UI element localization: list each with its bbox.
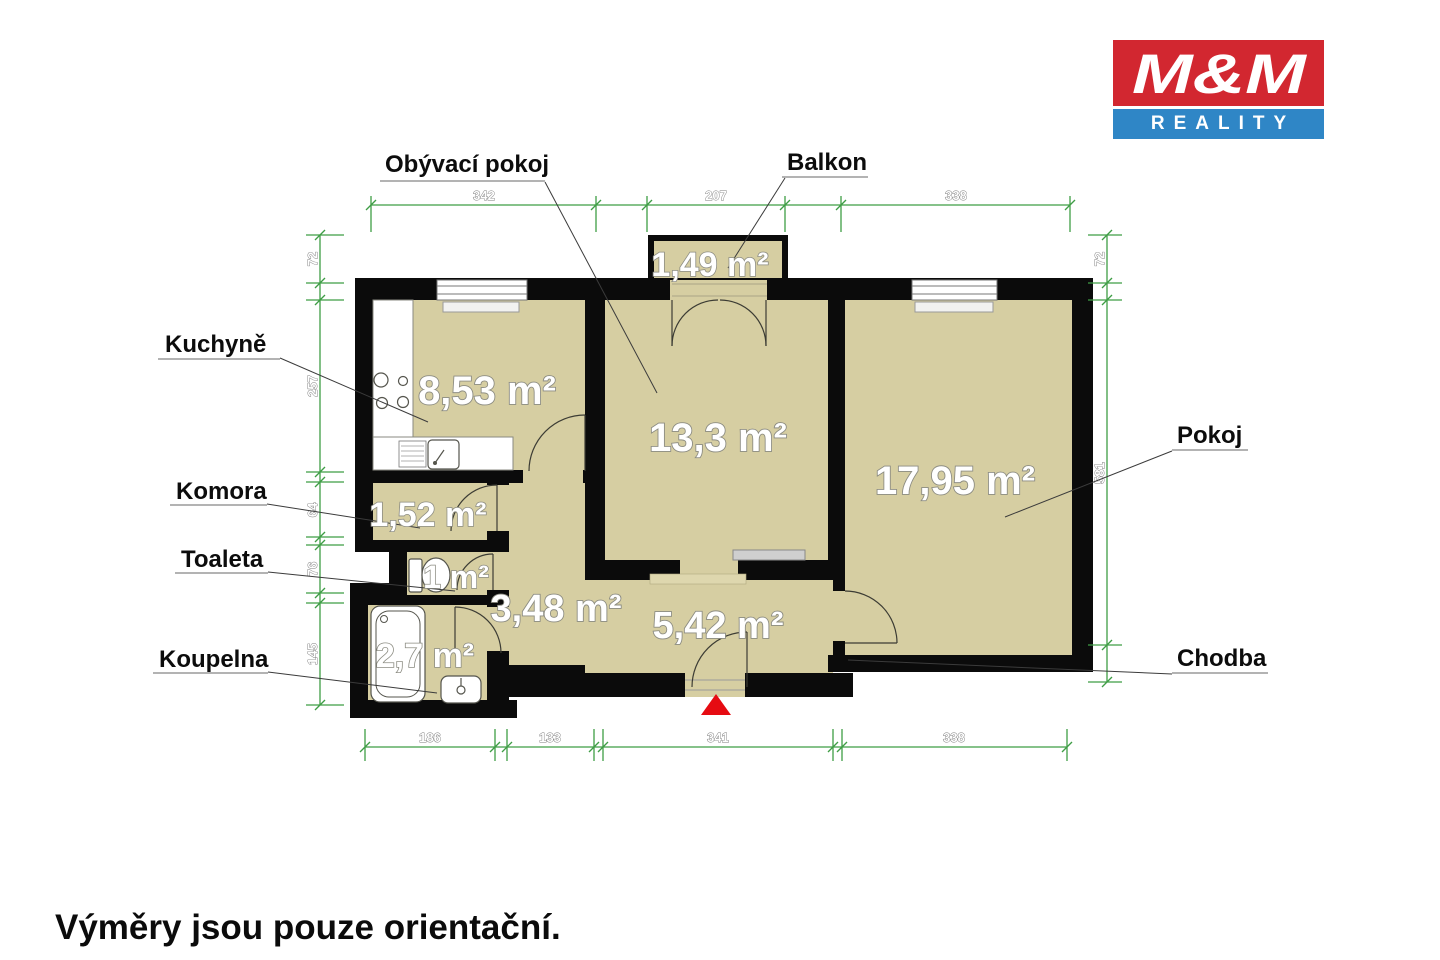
dim-left-1: 72 <box>305 252 320 266</box>
label-kitchen: Kuchyně <box>165 331 266 358</box>
area-inner-hall: 3,48 m² <box>491 588 622 630</box>
floor-plan-page: 342 207 338 186 133 341 338 72 257 64 76… <box>0 0 1440 960</box>
area-balcony: 1,49 m² <box>651 246 768 284</box>
area-bathroom: 2,7 m² <box>376 637 474 675</box>
dim-top-2: 207 <box>705 188 727 203</box>
floor-plan-drawing: 342 207 338 186 133 341 338 72 257 64 76… <box>0 0 1440 960</box>
kitchen-window <box>437 280 527 300</box>
area-bedroom: 17,95 m² <box>875 459 1035 503</box>
label-bedroom: Pokoj <box>1177 422 1242 449</box>
bedroom-window <box>912 280 997 300</box>
logo-reality-text: REALITY <box>1142 113 1295 135</box>
area-pantry: 1,52 m² <box>369 496 486 534</box>
label-living-room: Obývací pokoj <box>385 151 549 178</box>
dim-bottom-4: 338 <box>943 730 965 745</box>
dim-bottom-1: 186 <box>419 730 441 745</box>
logo-mm-text: M&M <box>1132 41 1306 106</box>
dim-ticks-right <box>1088 230 1122 687</box>
balcony-parapet-top <box>648 235 788 241</box>
area-hallway: 5,42 m² <box>653 605 784 647</box>
label-toilet: Toaleta <box>181 546 264 573</box>
living-room-radiator <box>733 550 805 560</box>
dim-left-5: 145 <box>305 643 320 665</box>
balcony-parapet-right <box>782 235 788 285</box>
bedroom-radiator <box>915 302 993 312</box>
dim-right-2: 581 <box>1092 462 1107 484</box>
dim-left-2: 257 <box>305 375 320 397</box>
logo-red-block: M&M <box>1113 40 1324 106</box>
label-pantry: Komora <box>176 478 267 505</box>
dim-bottom-2: 133 <box>539 730 561 745</box>
area-toilet: 1 m² <box>423 559 489 595</box>
dim-ticks-left <box>306 230 344 710</box>
dim-bottom-3: 341 <box>707 730 729 745</box>
label-bathroom: Koupelna <box>159 646 269 673</box>
area-kitchen: 8,53 m² <box>418 369 556 413</box>
label-balcony: Balkon <box>787 149 867 176</box>
dim-left-4: 76 <box>305 562 320 576</box>
dim-right-1: 72 <box>1092 252 1107 266</box>
disclaimer-text: Výměry jsou pouze orientační. <box>55 908 561 948</box>
area-living-room: 13,3 m² <box>649 416 787 460</box>
toilet-door-opening <box>487 552 509 590</box>
bathroom-sink-icon <box>441 676 481 703</box>
entrance-arrow-icon <box>701 694 731 715</box>
dim-top-1: 342 <box>473 188 495 203</box>
logo-blue-block: REALITY <box>1113 109 1324 139</box>
dim-top-3: 338 <box>945 188 967 203</box>
dim-left-3: 64 <box>305 502 320 517</box>
living-opening-sill <box>650 574 746 584</box>
label-hallway: Chodba <box>1177 645 1267 672</box>
mm-reality-logo: M&M REALITY <box>1113 40 1324 139</box>
bedroom-door-opening <box>833 591 845 641</box>
inner-hall-floor <box>507 483 585 673</box>
pantry-door-opening <box>487 485 509 531</box>
kitchen-door-opening <box>523 470 583 483</box>
kitchen-radiator <box>443 302 519 312</box>
entrance-opening <box>685 673 745 697</box>
